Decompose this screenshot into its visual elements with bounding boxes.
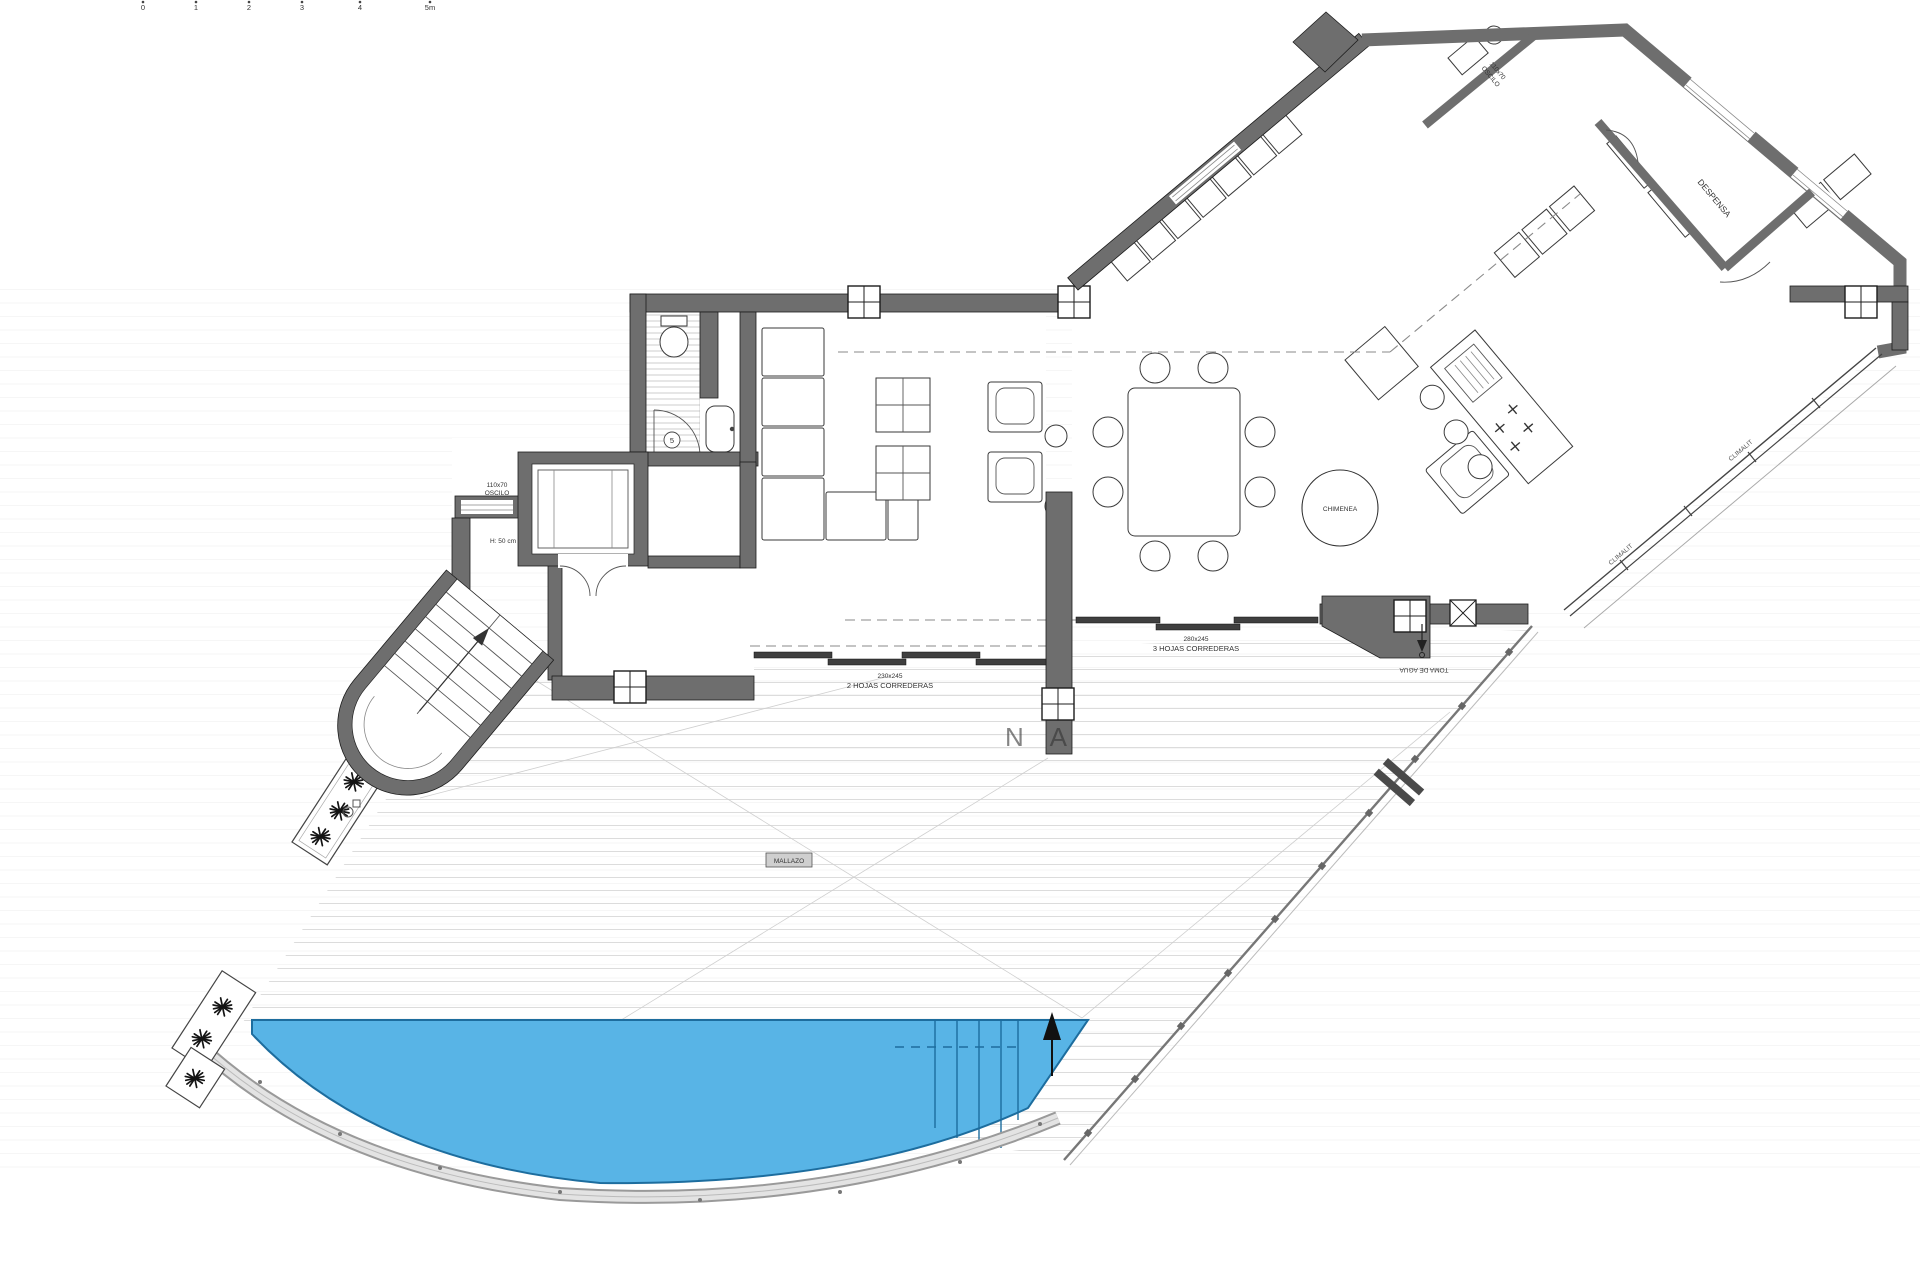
scale-5: 5m [425,3,435,12]
scale-bar: 0 1 2 3 4 5m [141,1,435,12]
toilet [660,316,688,357]
wall-vent-window [1042,688,1074,720]
wall-vent-window [1058,286,1090,318]
scale-1: 1 [194,3,198,12]
scale-4: 4 [358,3,362,12]
wall-vent-window [1845,286,1877,318]
mesh-tag: MALLAZO [766,853,812,867]
slider2-size-label: 230x245 [878,673,903,680]
water-tap-label: TOMA DE AGUA [1399,666,1449,673]
scale-3: 3 [300,3,304,12]
slider3-size-label: 280x245 [1184,636,1209,643]
scale-0: 0 [141,3,145,12]
x-vent-window [1450,600,1476,626]
wall-vent-window [848,286,880,318]
fireplace-label: CHIMENEA [1323,506,1358,513]
slider3-name-label: 3 HOJAS CORREDERAS [1153,644,1239,653]
svg-text:MALLAZO: MALLAZO [774,858,804,865]
lift-window-size: 110x70 [487,482,508,489]
floor-plan-page: 0 1 2 3 4 5m MALLAZO [0,0,1920,1280]
slider2-name-label: 2 HOJAS CORREDERAS [847,681,933,690]
wall-vent-window [614,671,646,703]
lift-height-label: H: 50 cm [490,538,516,545]
scale-2: 2 [247,3,251,12]
fireplace: CHIMENEA [1302,470,1378,546]
wall-vent-window [1394,600,1426,632]
lift-window-type: OSCILO [485,490,510,497]
door-number-tag: 5 [670,436,674,445]
floor-plan-svg: 0 1 2 3 4 5m MALLAZO [0,0,1920,1280]
watermark: N A [1005,722,1077,752]
